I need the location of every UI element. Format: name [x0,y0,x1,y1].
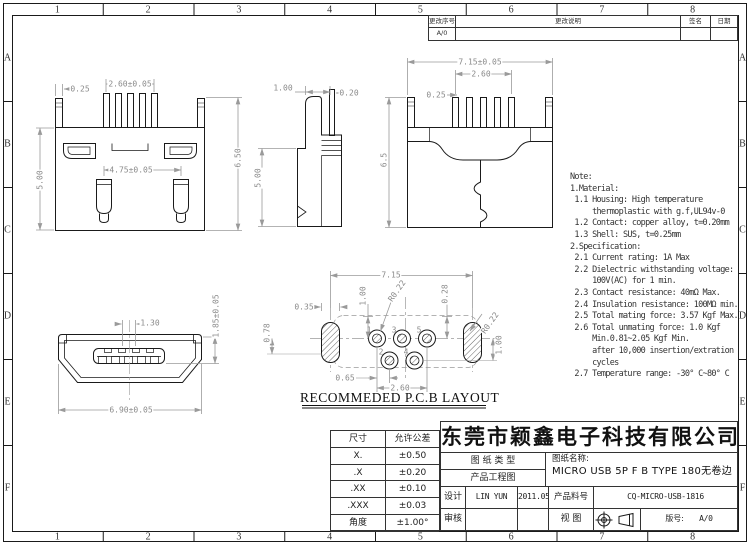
revision-row-rev: A/0 [429,28,456,40]
grid-col-label-top: 8 [690,4,695,15]
revision-row-desc [456,28,681,40]
drawing-name-cell: 图纸名称: MICRO USB 5P F B TYPE 180无卷边 [546,453,737,486]
dimension-label-pcb-layout: 0.28 [441,283,450,304]
note-line: Min.0.81~2.05 Kgf Min. [570,334,740,346]
note-line: 2.3 Contact resistance: 40mΩ Max. [570,288,740,300]
note-line: 2.4 Insulation resistance: 100MΩ min. [570,300,740,312]
tolerance-size: 角度 [331,515,386,531]
grid-row-label-left: A [4,53,11,64]
note-line: cycles [570,358,740,370]
dimension-label-pcb-layout: 0.78 [263,322,272,343]
pcb-pads [322,323,482,370]
grid-row-label-right: B [739,139,746,150]
drawing-name-value: MICRO USB 5P F B TYPE 180无卷边 [552,465,737,479]
designer-name: LIN YUN [466,487,518,508]
note-line: 1.2 Contact: copper alloy, t=0.20mm [570,218,740,230]
grid-row-label-left: F [5,483,11,494]
tolerance-row: 角度±1.00° [331,515,439,532]
pcb-layout-caption: RECOMMEDED P.C.B LAYOUT [300,390,488,406]
dimension-label-side-view: 5.00 [254,167,263,188]
design-date: 2011.05.22 [518,487,549,508]
company-name: 东莞市颖鑫电子科技有限公司 [440,421,738,453]
grid-col-label-top: 6 [509,4,514,15]
title-block-type-row: 图 纸 类 型 产品工程图 图纸名称: MICRO USB 5P F B TYP… [440,453,738,487]
dimension-label-top-view: 0.25 [69,85,90,94]
tolerance-value: ±0.50 [386,448,439,464]
tolerance-row: .XX±0.10 [331,481,439,498]
revision-header-date: 日期 [711,16,737,28]
tolerance-size: .X [331,465,386,481]
grid-row-label-left: D [4,311,11,322]
revision-header-no: 更改序号 [429,16,456,28]
version-cell: 版号: A/0 [641,509,737,530]
notes-block: Note:1.Material: 1.1 Housing: High tempe… [570,172,740,381]
tolerance-row: X.±0.50 [331,448,439,465]
grid-row-label-right: E [739,397,745,408]
note-line: 2.1 Current rating: 1A Max [570,253,740,265]
tolerance-size: .XX [331,481,386,497]
grid-col-label-bottom: 4 [327,531,332,542]
note-line: 100V(AC) for 1 min. [570,276,740,288]
dimension-label-front-view: 1.30 [139,319,160,328]
review-label: 审核 [441,509,466,530]
back-view [408,98,553,228]
note-line: 2.2 Dielectric withstanding voltage: [570,265,740,277]
dimension-label-back-view: 7.15±0.05 [457,58,502,67]
grid-col-label-top: 1 [55,4,60,15]
pcb-pad-number: 4 [404,348,409,357]
revision-header-sign: 签名 [681,16,711,28]
note-line: 2.5 Total mating force: 3.57 Kgf Max. [570,311,740,323]
revision-header-desc: 更改说明 [456,16,681,28]
tolerance-table: 尺寸 允许公差 X.±0.50.X±0.20.XX±0.10.XXX±0.03角… [330,430,440,531]
revision-table: 更改序号 更改说明 签名 日期 A/0 [428,15,738,41]
dimension-label-top-view: 5.00 [36,169,45,190]
note-line: 2.6 Total unmating force: 1.0 Kgf [570,323,740,335]
engineering-drawing-sheet: 1122334455667788AABBCCDDEEFF 更改序号 更改说明 签… [0,0,750,547]
grid-row-label-right: C [739,225,746,236]
tolerance-row: .XXX±0.03 [331,498,439,515]
revision-row-date [711,28,737,40]
review-date [518,509,549,530]
grid-row-label-left: B [4,139,11,150]
grid-row-label-left: C [4,225,11,236]
tolerance-header-row: 尺寸 允许公差 [331,431,439,448]
pcb-pad-number: 3 [392,326,397,335]
dimension-label-pcb-layout: 0.65 [334,374,355,383]
grid-col-label-bottom: 1 [55,531,60,542]
note-line: thermoplastic with g.f,UL94v-0 [570,207,740,219]
grid-row-label-right: A [739,53,746,64]
dimension-label-side-view: 1.00 [272,84,293,93]
dimension-label-top-view: 2.60±0.05 [107,80,152,89]
tolerance-header-size: 尺寸 [331,431,386,447]
grid-col-label-top: 3 [236,4,241,15]
side-view-dims [258,86,346,227]
tolerance-size: X. [331,448,386,464]
grid-col-label-top: 2 [146,4,151,15]
grid-col-label-bottom: 5 [418,531,423,542]
grid-col-label-bottom: 2 [146,531,151,542]
pcb-pad-number: 1 [367,326,372,335]
top-view [56,94,205,231]
grid-col-label-bottom: 6 [509,531,514,542]
dimension-label-back-view: 2.60 [470,70,491,79]
part-no-value: CQ-MICRO-USB-1816 [594,487,737,508]
doc-type-cell: 图 纸 类 型 产品工程图 [441,453,546,486]
grid-col-label-bottom: 7 [599,531,604,542]
note-line: 1.Material: [570,184,740,196]
note-line: 2.7 Temperature range: -30° C~80° C [570,369,740,381]
part-no-label: 产品料号 [549,487,594,508]
dimension-label-pcb-layout: 0.35 [293,303,314,312]
dimension-label-pcb-layout: 1.00 [495,334,504,355]
dimension-label-back-view: 6.5 [380,152,389,168]
title-block-review-row: 审核 视 图 版号: A/0 [440,509,738,531]
tolerance-value: ±0.10 [386,481,439,497]
note-line: Note: [570,172,740,184]
tolerance-value: ±0.03 [386,498,439,514]
note-line: 1.1 Housing: High temperature [570,195,740,207]
dimension-label-top-view: 6.50 [234,147,243,168]
pcb-pad-number: 2 [379,348,384,357]
dimension-label-side-view: 0.20 [338,89,359,98]
revision-row-sign [681,28,711,40]
pcb-pad-number: 5 [417,326,422,335]
tolerance-size: .XXX [331,498,386,514]
dimension-label-front-view: 6.90±0.05 [108,406,153,415]
note-line: 2.Specification: [570,242,740,254]
third-angle-projection-icon [595,511,640,529]
design-label: 设计 [441,487,466,508]
dimension-label-back-view: 0.25 [425,91,446,100]
grid-row-label-left: E [4,397,10,408]
tolerance-value: ±1.00° [386,515,439,531]
version-value: A/0 [699,514,713,523]
note-line: 1.3 Shell: SUS, t=0.25mm [570,230,740,242]
grid-col-label-top: 5 [418,4,423,15]
title-block-design-row: 设计 LIN YUN 2011.05.22 产品料号 CQ-MICRO-USB-… [440,487,738,509]
dimension-label-front-view: 1.85±0.05 [212,293,221,338]
version-label: 版号: [665,514,684,523]
view-label: 视 图 [549,509,594,530]
dimension-label-pcb-layout: 1.00 [359,285,368,306]
tolerance-row: .X±0.20 [331,465,439,482]
grid-col-label-bottom: 8 [690,531,695,542]
doc-type-value: 产品工程图 [441,470,545,486]
dimension-label-pcb-layout: 7.15 [380,271,401,280]
doc-type-label: 图 纸 类 型 [441,453,545,470]
grid-row-label-right: F [740,483,746,494]
front-view [59,335,202,383]
tolerance-header-allow: 允许公差 [386,431,439,447]
projection-symbol-cell [594,509,641,530]
review-signature [466,509,518,530]
tolerance-value: ±0.20 [386,465,439,481]
grid-col-label-bottom: 3 [236,531,241,542]
grid-col-label-top: 4 [327,4,332,15]
dimension-label-top-view: 4.75±0.05 [108,166,153,175]
drawing-name-label: 图纸名称: [552,454,737,465]
side-view [298,90,342,227]
back-view-dims [385,58,553,228]
grid-col-label-top: 7 [599,4,604,15]
note-line: after 10,000 insertion/extration [570,346,740,358]
